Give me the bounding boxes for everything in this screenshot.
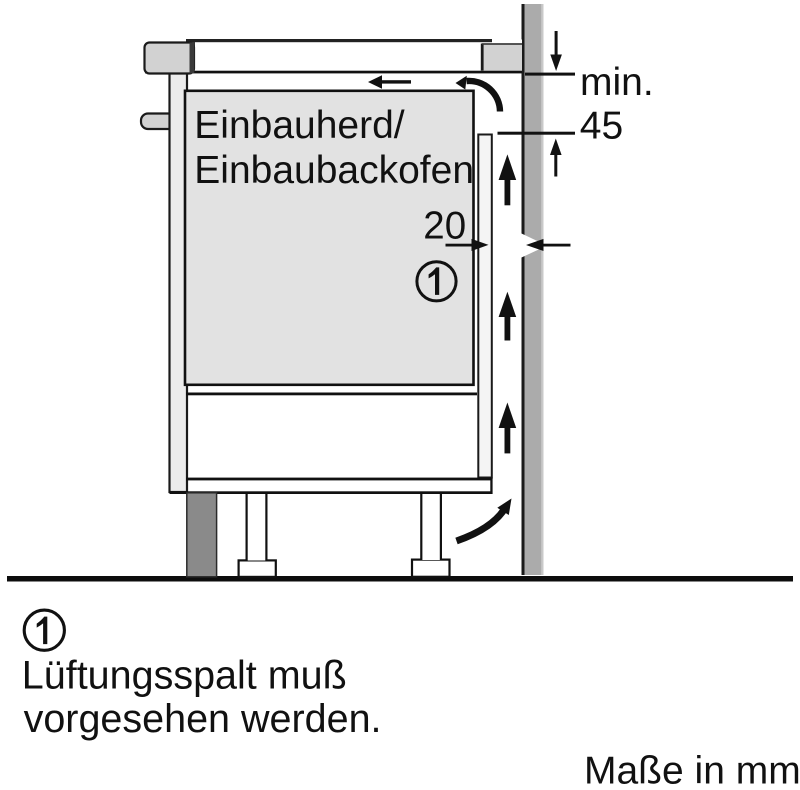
svg-text:Einbaubackofen: Einbaubackofen — [194, 149, 474, 192]
svg-text:Maße in mm: Maße in mm — [584, 749, 800, 790]
svg-text:20: 20 — [423, 204, 466, 247]
svg-text:min.: min. — [580, 61, 654, 104]
svg-text:Lüftungsspalt muß: Lüftungsspalt muß — [22, 654, 347, 698]
svg-text:45: 45 — [580, 104, 623, 147]
svg-text:Einbauherd/: Einbauherd/ — [194, 104, 404, 147]
svg-text:vorgesehen werden.: vorgesehen werden. — [24, 697, 382, 741]
